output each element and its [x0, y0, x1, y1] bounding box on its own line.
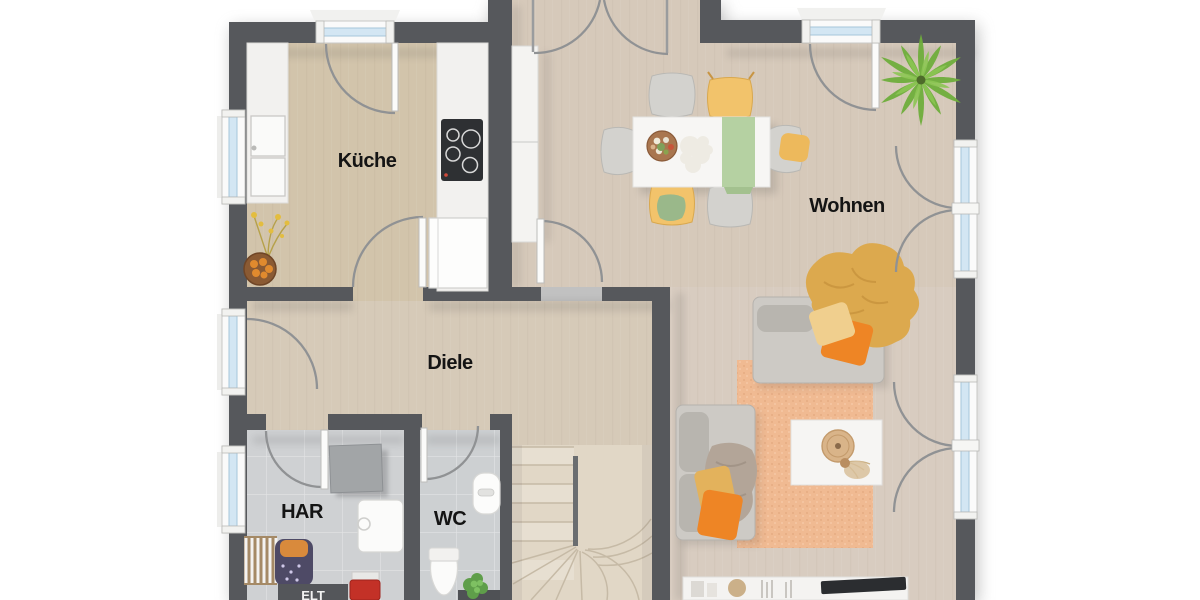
- svg-text:HAR: HAR: [281, 501, 324, 523]
- svg-text:Wohnen: Wohnen: [809, 195, 885, 217]
- svg-text:Küche: Küche: [338, 150, 397, 172]
- svg-text:WC: WC: [434, 508, 466, 530]
- svg-text:ELT: ELT: [301, 588, 325, 600]
- svg-text:Diele: Diele: [427, 352, 473, 374]
